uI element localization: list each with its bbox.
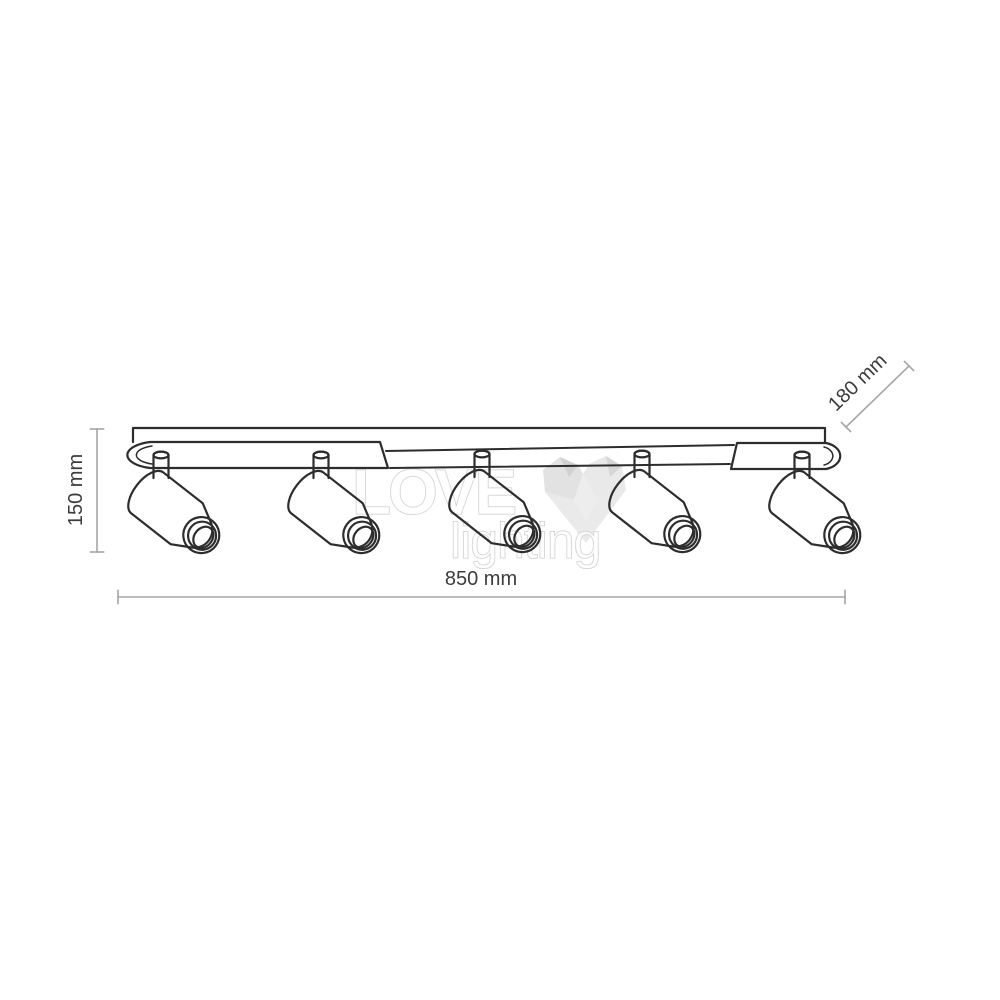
dimension-depth-label: 180 mm bbox=[824, 350, 891, 416]
product-dimension-diagram: LOVE lighting 150 mm 850 mm 180 mm bbox=[0, 0, 1000, 1000]
dimension-height-line bbox=[91, 429, 104, 552]
dimension-length-line bbox=[118, 591, 845, 604]
dimension-height-label: 150 mm bbox=[65, 454, 87, 526]
dimension-length-label: 850 mm bbox=[445, 568, 517, 590]
diagram-canvas: LOVE lighting 150 mm 850 mm 180 mm bbox=[0, 0, 1000, 1000]
